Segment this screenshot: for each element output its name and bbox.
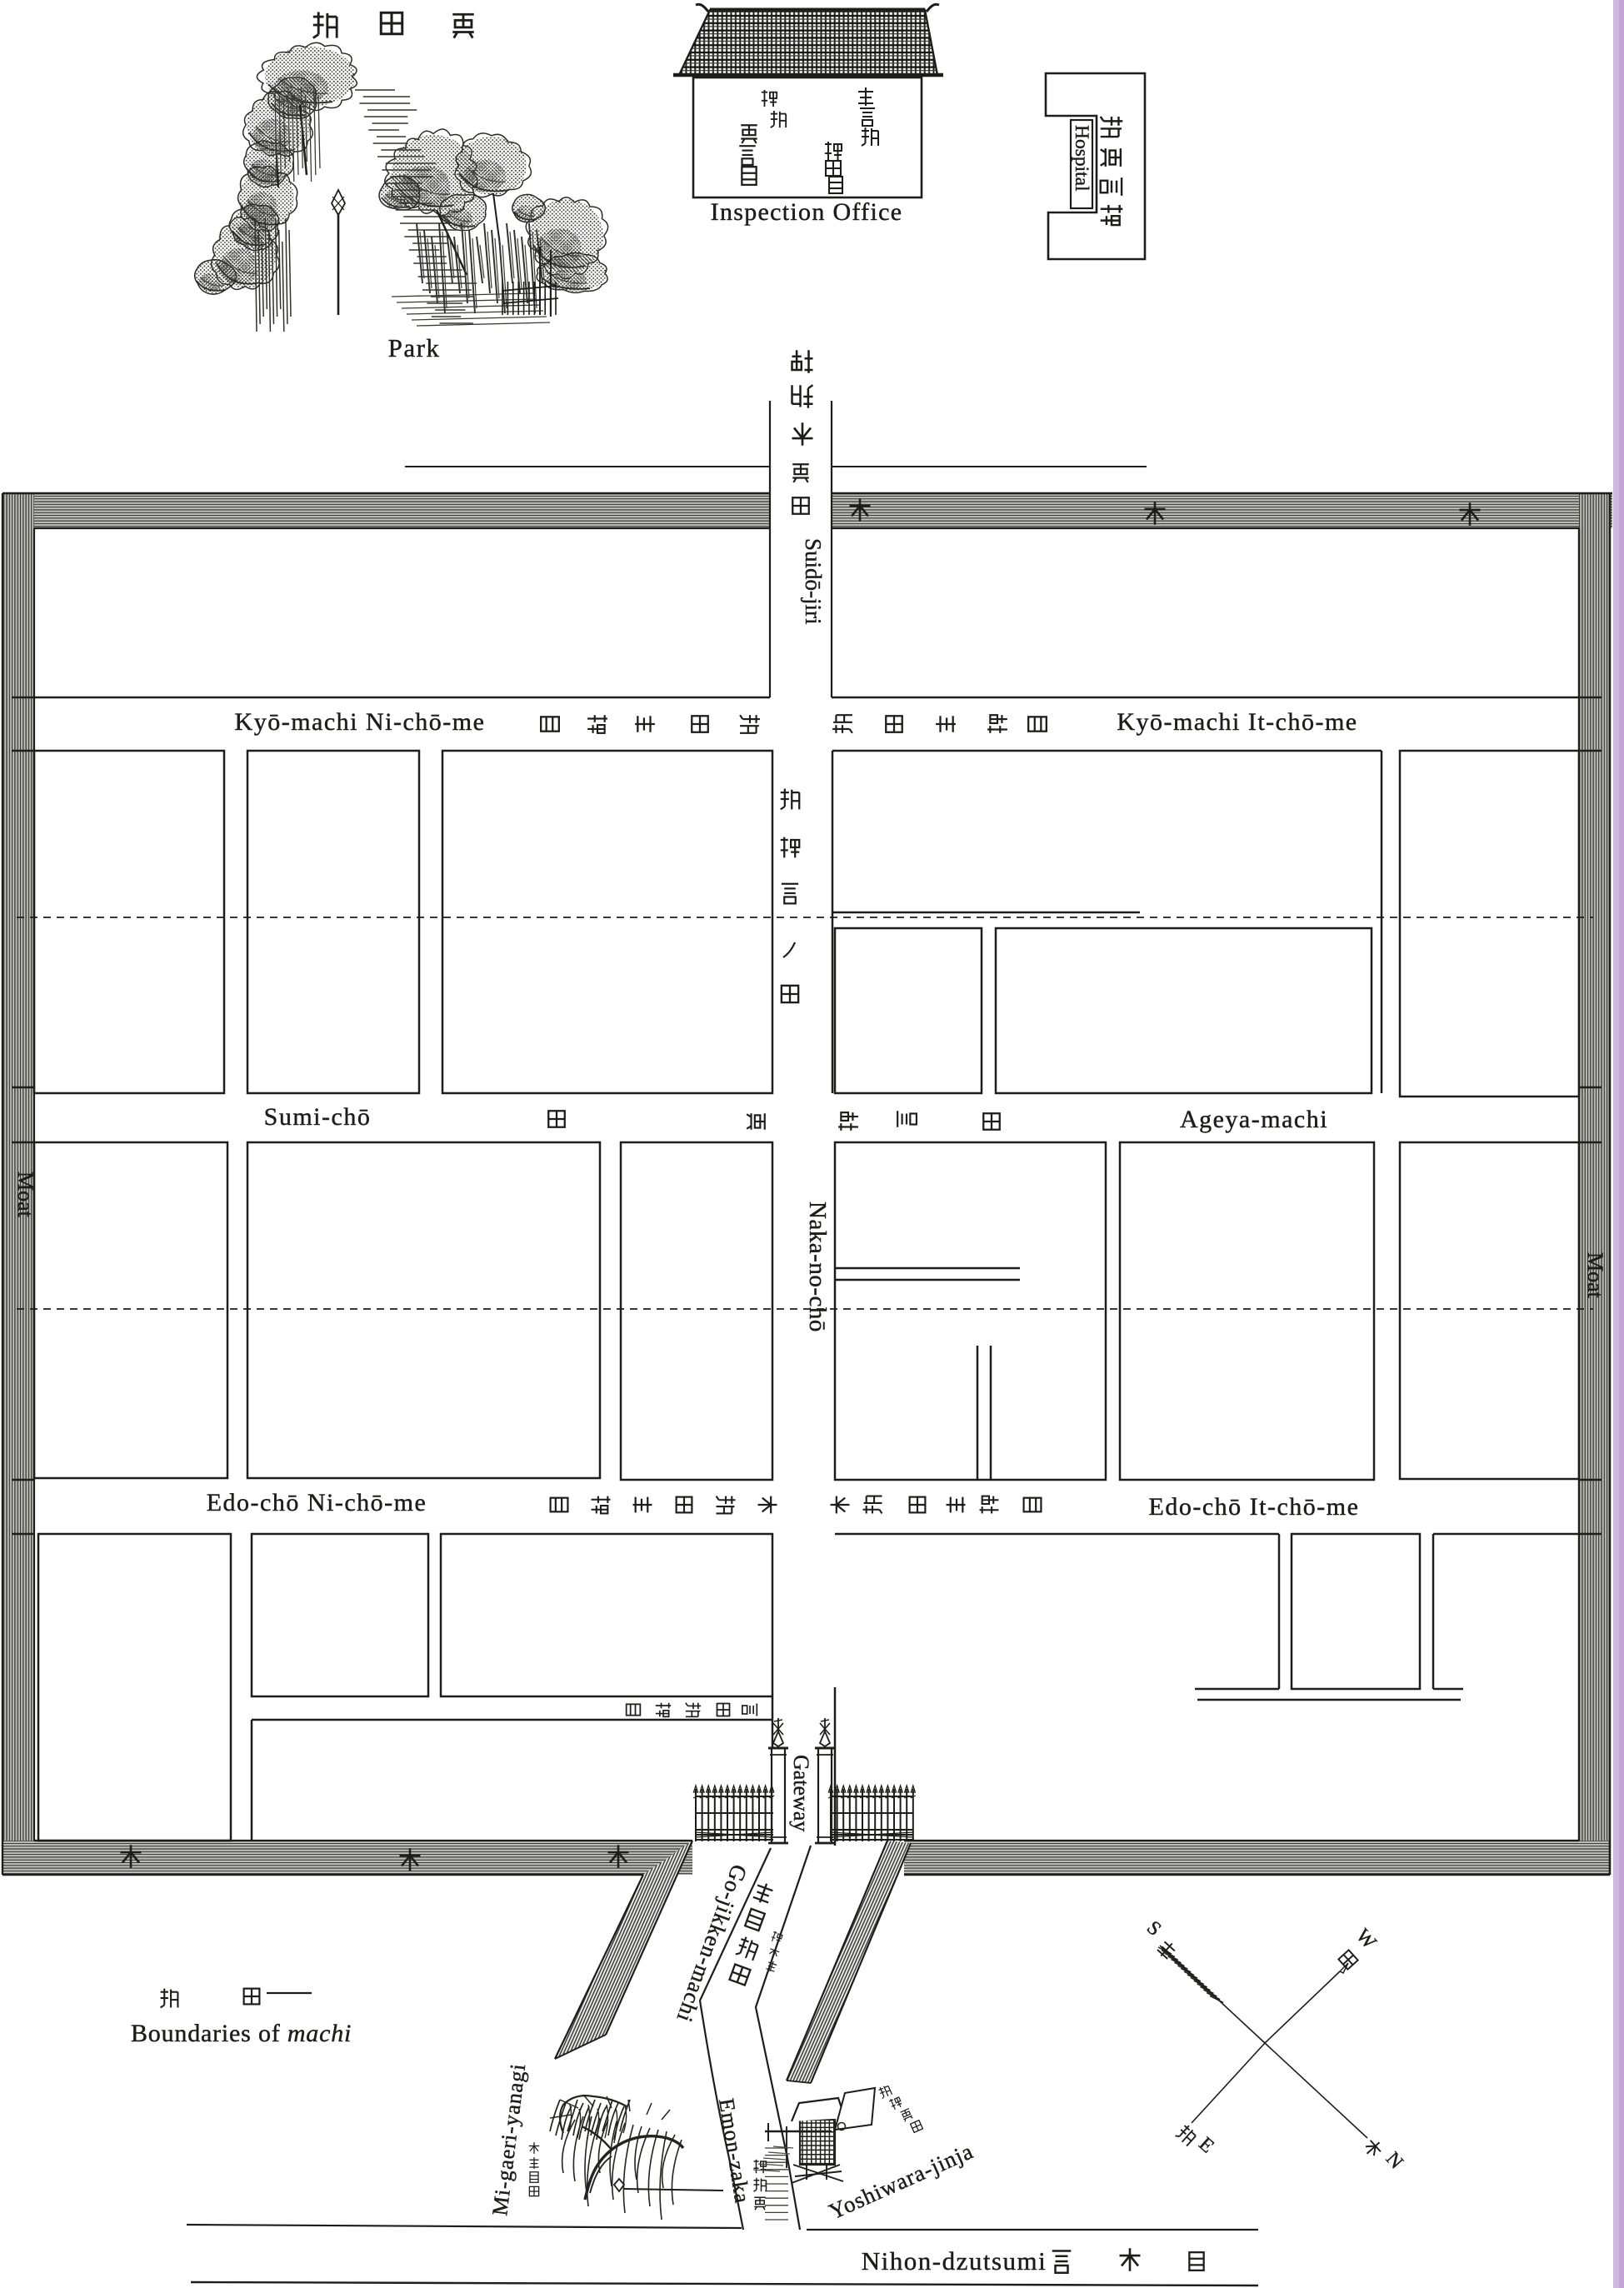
svg-text:Gateway: Gateway [789, 1755, 813, 1831]
svg-text:Inspection Office: Inspection Office [711, 198, 903, 226]
svg-text:Hospital: Hospital [1071, 125, 1092, 192]
svg-text:Park: Park [388, 333, 441, 362]
svg-text:Sumi-chō: Sumi-chō [264, 1103, 372, 1131]
svg-text:Suidō-jiri: Suidō-jiri [801, 538, 826, 625]
svg-text:Kyō-machi Ni-chō-me: Kyō-machi Ni-chō-me [235, 708, 486, 736]
svg-text:Edo-chō It-chō-me: Edo-chō It-chō-me [1149, 1493, 1360, 1521]
svg-text:Edo-chō Ni-chō-me: Edo-chō Ni-chō-me [207, 1489, 427, 1516]
svg-text:Moat: Moat [1583, 1252, 1607, 1299]
svg-text:Nihon-dzutsumi: Nihon-dzutsumi [862, 2246, 1047, 2276]
svg-text:Boundaries of machi: Boundaries of machi [131, 2020, 352, 2047]
svg-text:Kyō-machi It-chō-me: Kyō-machi It-chō-me [1117, 708, 1357, 736]
svg-text:Ageya-machi: Ageya-machi [1180, 1106, 1328, 1133]
svg-text:Moat: Moat [13, 1171, 37, 1218]
svg-text:Naka-no-chō: Naka-no-chō [804, 1201, 831, 1332]
